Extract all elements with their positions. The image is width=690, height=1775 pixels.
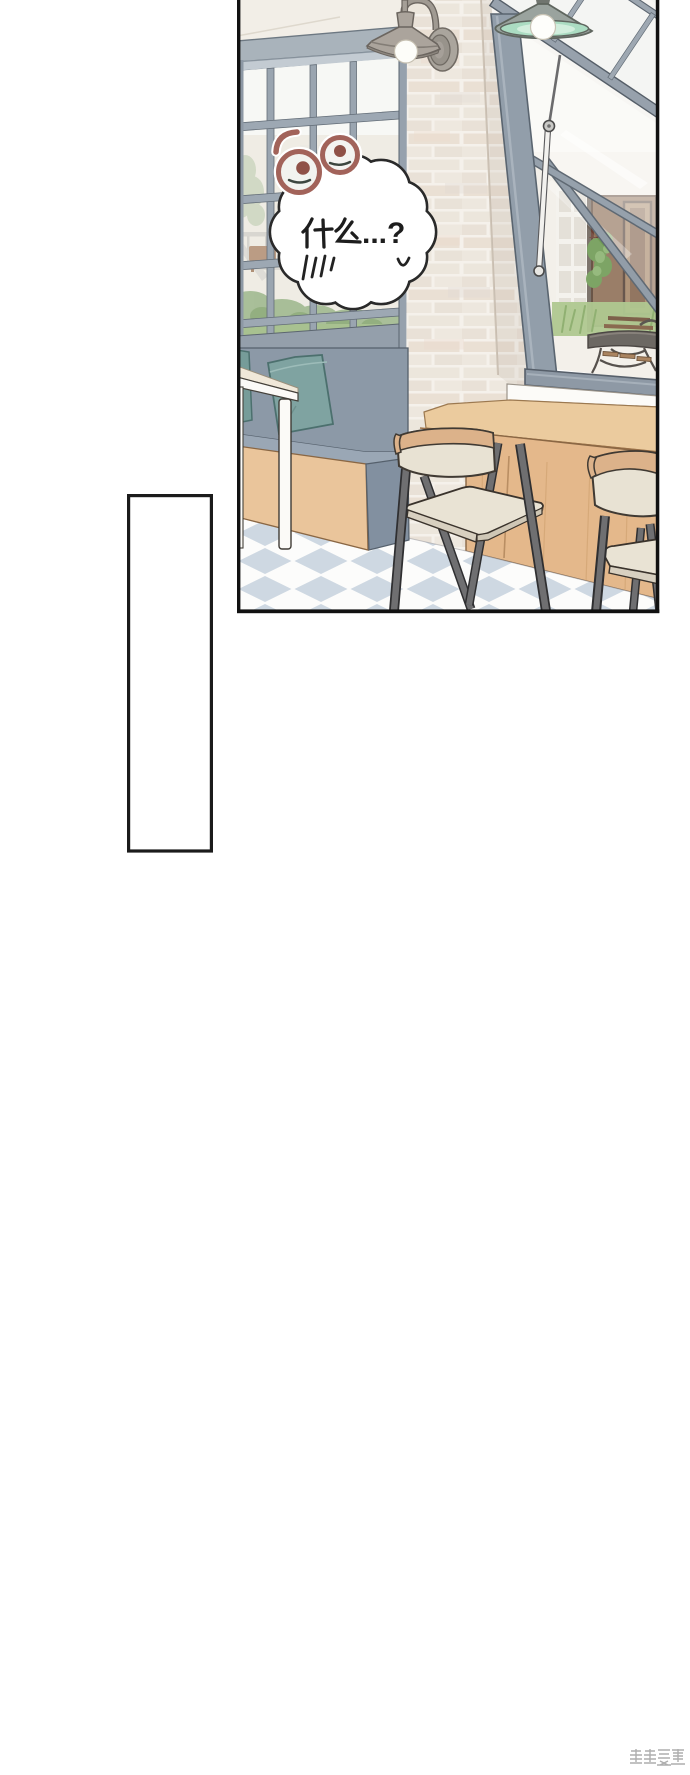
svg-text:...?: ...? <box>362 217 405 250</box>
